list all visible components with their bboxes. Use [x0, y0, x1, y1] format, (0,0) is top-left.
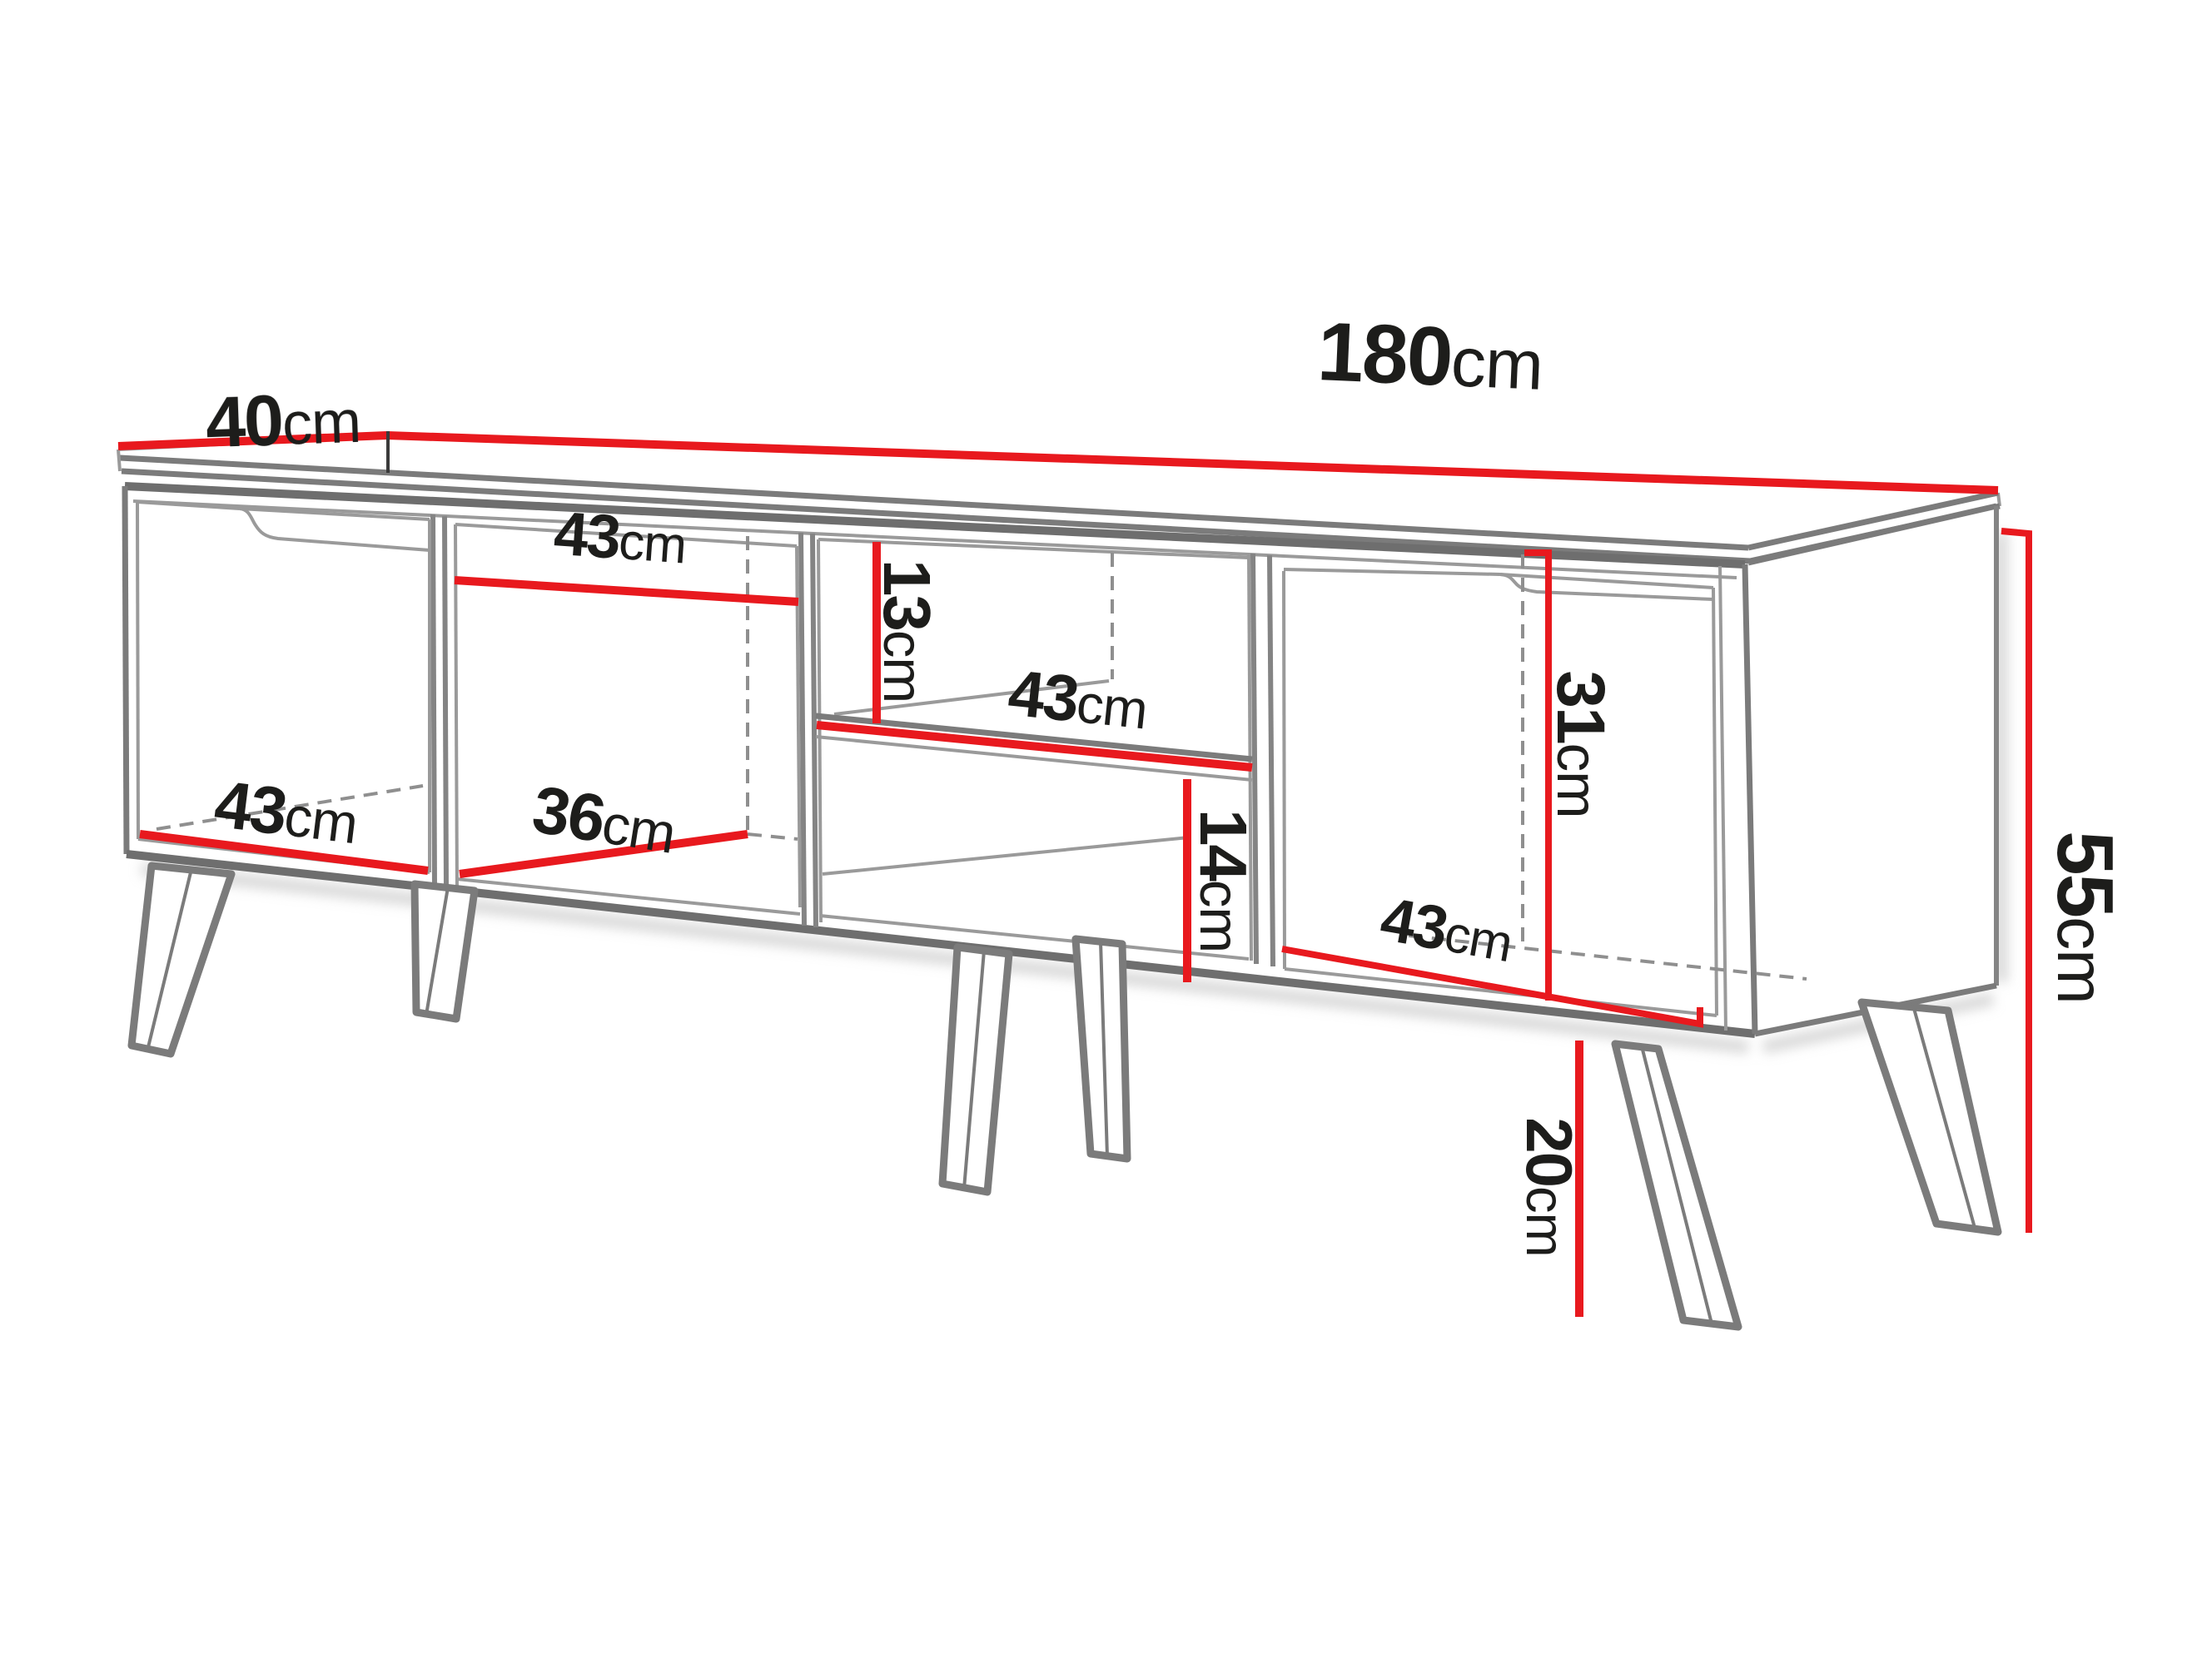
label-upper-niche: 13cm — [870, 559, 944, 703]
divider-1 — [433, 514, 446, 889]
label-right-comp-height: 31cm — [1543, 670, 1618, 817]
legs — [132, 866, 1998, 1327]
furniture-dimension-drawing: 40cm 180cm 55cm 43cm 43cm 36cm 13cm 43cm… — [0, 0, 2212, 1659]
divider-edge — [813, 534, 816, 927]
middle-left-wall — [818, 539, 821, 922]
label-leg-height: 20cm — [1513, 1117, 1586, 1256]
carcass — [125, 486, 1996, 1034]
right-stile-edge — [1720, 566, 1726, 1031]
comp2-hidden-floor — [748, 834, 798, 839]
divider-edge — [433, 514, 435, 887]
dim-line-right-comp-height-31 — [1524, 553, 1548, 1001]
middle-top-line — [818, 539, 1249, 558]
middle-floor-back-edge — [823, 837, 1189, 874]
right-door-right-edge — [1713, 588, 1717, 1016]
divider-2 — [801, 533, 816, 927]
diagram-canvas: 40cm 180cm 55cm 43cm 43cm 36cm 13cm 43cm… — [0, 0, 2212, 1659]
right-gable-face — [1748, 506, 1996, 1034]
divider-3 — [1253, 554, 1273, 966]
divider-edge — [801, 533, 804, 926]
label-lower-niche: 14cm — [1186, 809, 1260, 952]
top-panel-left-cap — [118, 450, 120, 471]
leg-front-left — [132, 866, 231, 1054]
right-door-top-edge — [1284, 569, 1500, 574]
label-right-comp-width: 43cm — [1375, 884, 1518, 975]
divider-edge — [1253, 554, 1256, 964]
label-comp2-depth: 36cm — [528, 772, 681, 867]
right-door-left-edge — [1284, 571, 1285, 969]
leg-back-right — [1862, 1002, 1998, 1232]
divider-edge — [1270, 555, 1273, 966]
label-top-depth: 40cm — [205, 378, 362, 463]
carcass-left-edge — [125, 486, 127, 854]
label-total-height: 55cm — [2041, 831, 2130, 1003]
label-shelf-width: 43cm — [1005, 655, 1151, 743]
left-door-left-edge — [137, 502, 138, 839]
divider-edge — [445, 516, 446, 889]
label-top-width: 180cm — [1315, 305, 1544, 408]
